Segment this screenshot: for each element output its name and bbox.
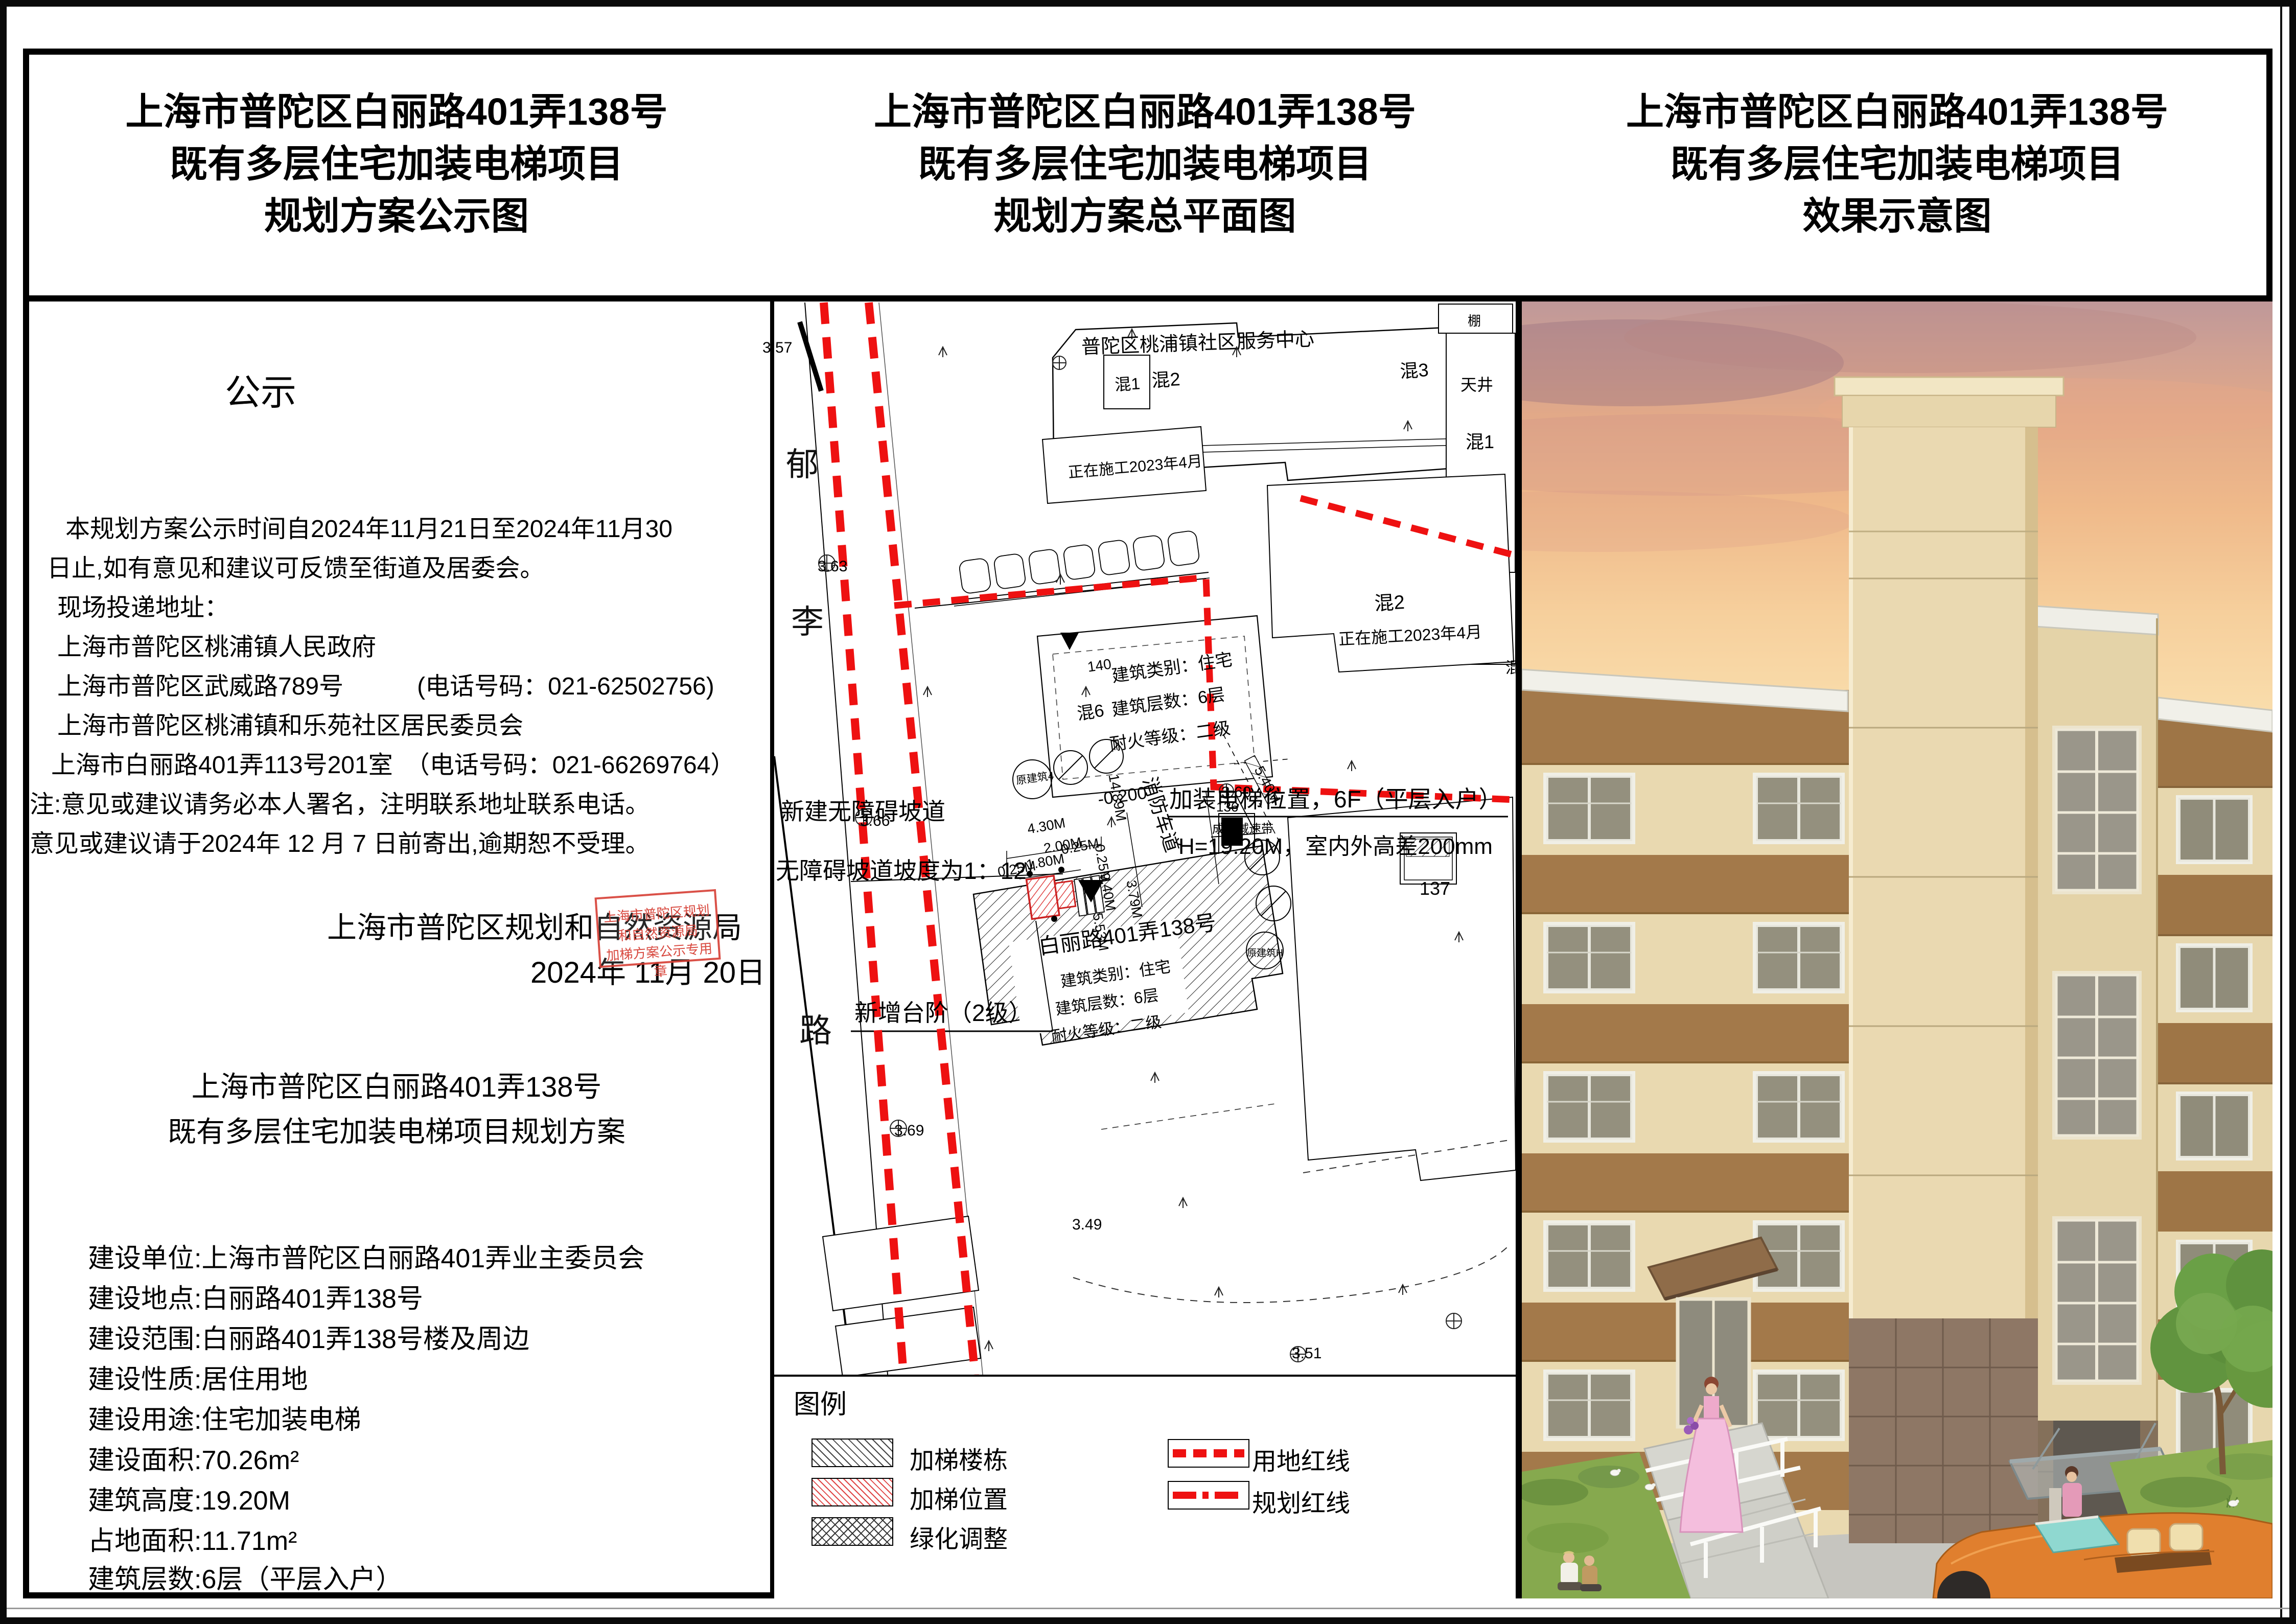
red-dash-line <box>1173 1449 1244 1457</box>
title-line: 既有多层住宅加装电梯项目 <box>774 138 1516 190</box>
notice-line: 上海市普陀区桃浦镇人民政府 <box>57 627 376 662</box>
road-name-char: 李 <box>791 596 824 643</box>
elevation-marker: 3.63 <box>818 558 847 575</box>
detail-line: 建筑层数:6层（平层入户） <box>88 1558 402 1596</box>
stamp-line: 加梯方案公示专用章 <box>600 939 720 985</box>
legend-label: 用地红线 <box>1252 1441 1350 1477</box>
map-label: 混1 <box>1114 370 1141 396</box>
detail-line: 建设面积:70.26m² <box>88 1439 299 1477</box>
elevation-marker: 3.69 <box>894 1122 924 1140</box>
map-label: 混1 <box>1466 427 1494 454</box>
notice-section-title: 公示 <box>225 364 296 415</box>
map-label-steps: 新增台阶（2级） <box>854 994 1032 1028</box>
road-name-char: 郁 <box>786 438 819 485</box>
elevation-marker: 3.49 <box>1072 1216 1102 1234</box>
title-line: 既有多层住宅加装电梯项目 <box>1522 138 2272 190</box>
elevation-marker: 3.57 <box>762 339 792 357</box>
map-ref-label: 原建筑H <box>1247 945 1283 959</box>
detail-line: 建筑高度:19.20M <box>88 1479 290 1517</box>
legend-swatch-planning-redline <box>1168 1481 1249 1510</box>
map-label: 混6 <box>1075 697 1105 725</box>
title-rendering: 上海市普陀区白丽路401弄138号 既有多层住宅加装电梯项目 效果示意图 <box>1522 86 2272 242</box>
red-dashdot-line <box>1173 1492 1244 1499</box>
title-line: 规划方案总平面图 <box>774 190 1516 242</box>
elevation-marker: 3.60 <box>1221 784 1251 801</box>
project-title-line: 既有多层住宅加装电梯项目规划方案 <box>23 1109 770 1150</box>
detail-line: 占地面积:11.71m² <box>88 1519 297 1558</box>
title-line: 规划方案公示图 <box>23 190 770 242</box>
detail-line: 建设性质:居住用地 <box>88 1358 308 1396</box>
elevation-marker: 3.51 <box>1292 1345 1321 1362</box>
notice-line: 上海市白丽路401弄113号201室 （电话号码：021-66269764） <box>51 745 735 780</box>
title-line: 上海市普陀区白丽路401弄138号 <box>23 86 770 138</box>
elevation-marker: 3.66 <box>860 813 890 830</box>
detail-line: 建设用途:住宅加装电梯 <box>88 1398 361 1436</box>
legend-swatch-elevator-position <box>811 1478 893 1506</box>
rendering-panel <box>1522 301 2272 1598</box>
title-site-plan: 上海市普陀区白丽路401弄138号 既有多层住宅加装电梯项目 规划方案总平面图 <box>774 86 1516 242</box>
map-label-speed-bump: 成品减速带 <box>1212 819 1273 837</box>
legend-label: 绿化调整 <box>910 1519 1008 1555</box>
panel-divider-left <box>770 301 774 1598</box>
panel-divider-right <box>1516 301 1522 1598</box>
legend-swatch-greenery <box>811 1517 893 1546</box>
legend: 图例 加梯楼栋 加梯位置 绿化调整 用地红线 规划红线 <box>774 1377 1516 1598</box>
legend-divider <box>774 1375 1516 1377</box>
title-line: 上海市普陀区白丽路401弄138号 <box>774 86 1516 138</box>
detail-line: 建设范围:白丽路401弄138号楼及周边 <box>88 1317 529 1356</box>
map-label: 137 <box>1420 878 1450 899</box>
map-label: 天井 <box>1460 372 1493 396</box>
map-label: 混3 <box>1399 355 1429 383</box>
building-rendering <box>1522 301 2272 1598</box>
detail-line: 建设单位:上海市普陀区白丽路401弄业主委员会 <box>88 1237 644 1275</box>
legend-swatch-land-redline <box>1168 1439 1249 1468</box>
title-line: 效果示意图 <box>1522 190 2272 242</box>
map-label: 混2 <box>1151 364 1181 392</box>
title-line: 既有多层住宅加装电梯项目 <box>23 138 770 190</box>
legend-label: 规划红线 <box>1252 1483 1350 1519</box>
map-label: 棚 <box>1468 311 1481 330</box>
notice-line: 现场投递地址： <box>57 587 229 623</box>
legend-label: 加梯位置 <box>910 1479 1008 1515</box>
road-name-char: 路 <box>799 1005 832 1052</box>
title-line: 上海市普陀区白丽路401弄138号 <box>1522 86 2272 138</box>
header-divider <box>23 295 2272 301</box>
notice-line: 注:意见或建议请务必本人署名，注明联系地址联系电话。 <box>30 784 650 820</box>
notice-line: 本规划方案公示时间自2024年11月21日至2024年11月30 <box>65 508 672 544</box>
notice-line: 上海市普陀区桃浦镇和乐苑社区居民委员会 <box>57 705 523 741</box>
project-title-line: 上海市普陀区白丽路401弄138号 <box>23 1064 770 1105</box>
official-stamp: 上海市普陀区规划和自然资源局 加梯方案公示专用章 <box>594 889 721 968</box>
title-public-notice: 上海市普陀区白丽路401弄138号 既有多层住宅加装电梯项目 规划方案公示图 <box>23 86 770 242</box>
map-label: 140 <box>1086 656 1112 675</box>
page-border-inner-line <box>2280 0 2282 1624</box>
map-label: 136 <box>1216 799 1238 815</box>
page-bottom-line <box>0 1608 2296 1609</box>
notice-line: 日止,如有意见和建议可反馈至街道及居委会。 <box>47 548 544 584</box>
detail-line: 建设地点:白丽路401弄138号 <box>88 1277 423 1315</box>
map-label: 混2 <box>1374 586 1405 616</box>
map-label-ramp-slope: 无障碍坡道坡度为1：12 <box>776 852 1027 886</box>
notice-line: 意见或建议请于2024年 12 月 7 日前寄出,逾期恕不受理。 <box>30 823 650 859</box>
legend-swatch-elevator-building <box>811 1439 893 1467</box>
legend-title: 图例 <box>794 1383 847 1421</box>
notice-line: 上海市普陀区武威路789号 (电话号码：021-62502756) <box>57 666 714 702</box>
planning-notice-poster: { "header": { "col1": ["上海市普陀区白丽路401弄138… <box>0 0 2296 1624</box>
legend-label: 加梯楼栋 <box>910 1440 1008 1476</box>
